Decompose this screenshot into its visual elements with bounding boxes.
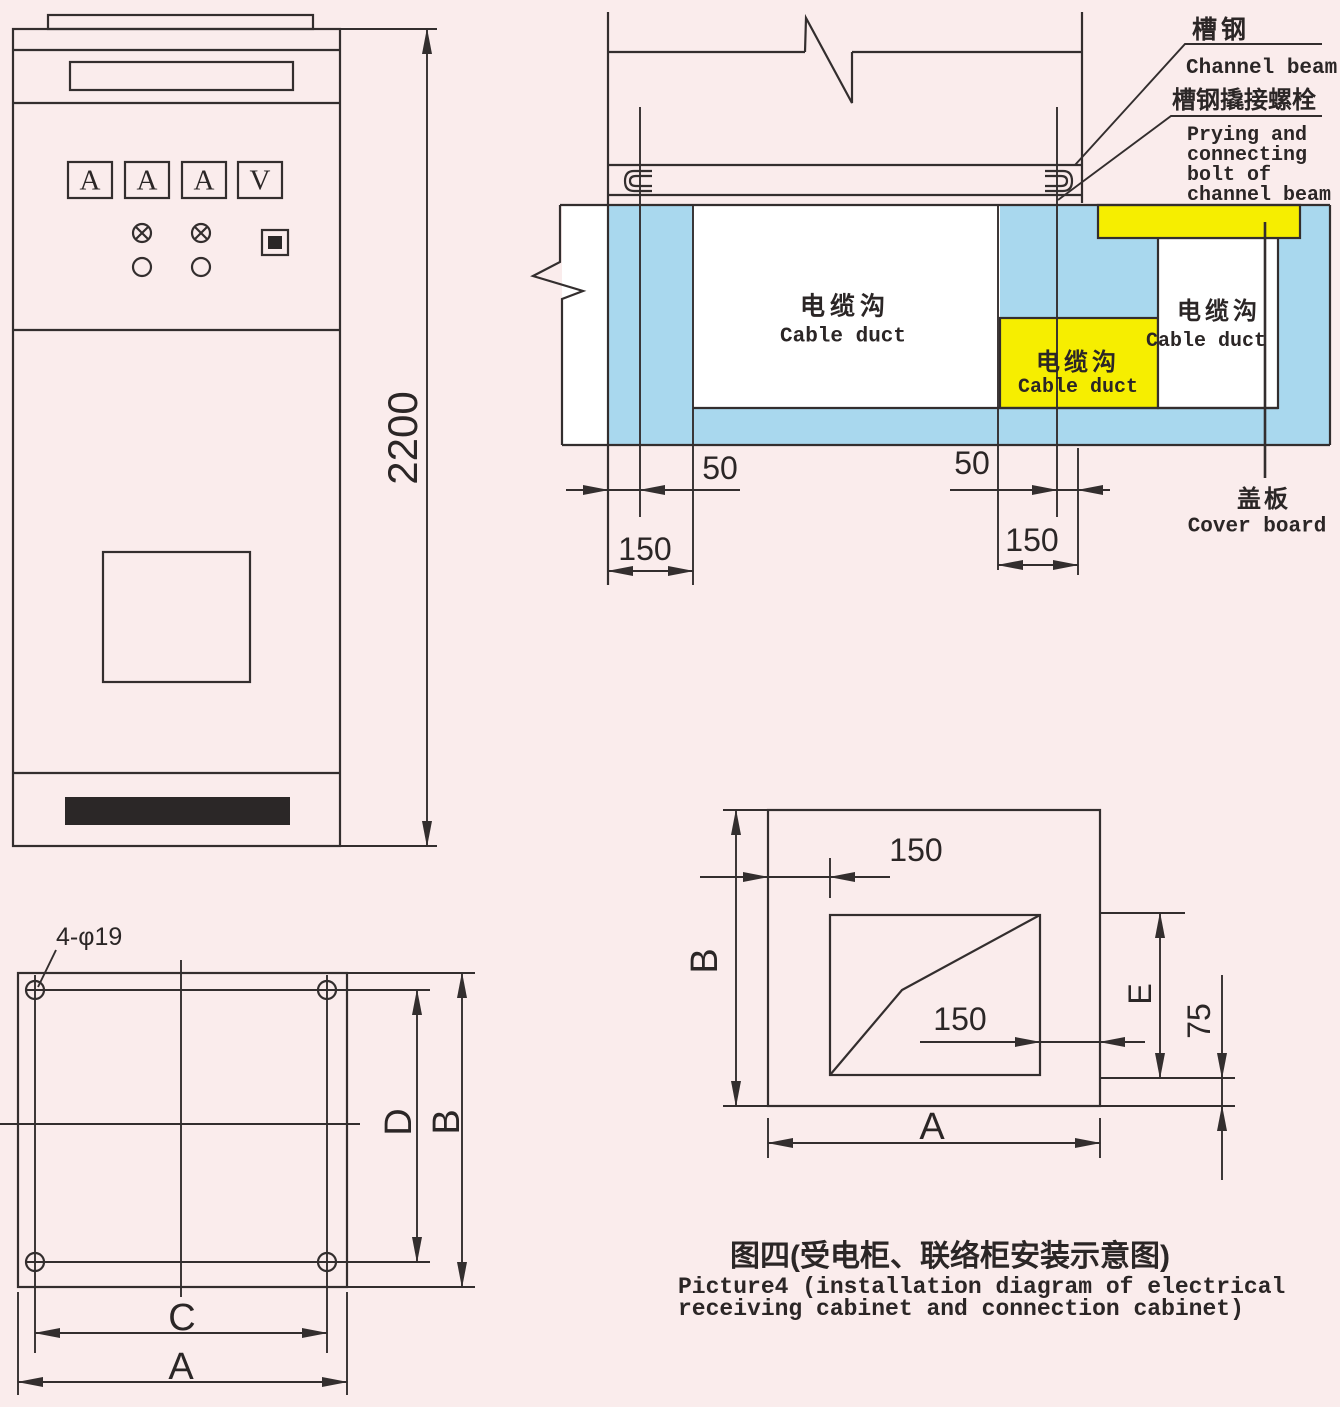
- holes-callout: 4-φ19: [56, 925, 122, 950]
- cable-duct-left-en: Cable duct: [780, 327, 906, 348]
- section-dim-50-right: 50: [954, 447, 990, 479]
- plan-right-dim-a: A: [919, 1108, 944, 1146]
- cover-board-label-en: Cover board: [1188, 517, 1327, 538]
- plan-right-dim-150-mid: 150: [933, 1003, 986, 1035]
- caption-title-cn: 图四(受电柜、联络柜安装示意图): [730, 1242, 1170, 1272]
- plan-left-dim-c: C: [168, 1299, 195, 1337]
- drawing-linework: [0, 0, 1340, 1407]
- bolt-label-cn: 槽钢撬接螺栓: [1172, 89, 1316, 113]
- front-view-lines: [13, 15, 437, 846]
- section-dim-50-left: 50: [702, 452, 738, 484]
- meter-label-a3: A: [194, 167, 215, 196]
- meter-label-v: V: [250, 167, 271, 196]
- cable-duct-mid-en: Cable duct: [1018, 378, 1138, 398]
- plan-left-lines: [0, 950, 475, 1395]
- bolt-label-en-2: connecting: [1187, 146, 1307, 166]
- cable-duct-right-en: Cable duct: [1146, 332, 1266, 352]
- plan-right-dim-75: 75: [1183, 1003, 1215, 1039]
- caption-title-en-line2: receiving cabinet and connection cabinet…: [678, 1298, 1244, 1321]
- plan-right-dim-e: E: [1124, 983, 1156, 1004]
- cable-duct-left-cn: 电缆沟: [800, 295, 890, 320]
- meter-label-a2: A: [137, 167, 158, 196]
- channel-beam-label-en: Channel beam: [1186, 58, 1337, 79]
- meter-label-a1: A: [80, 167, 101, 196]
- bolt-label-en-4: channel beam: [1187, 186, 1331, 206]
- bolt-label-en-1: Prying and: [1187, 126, 1307, 146]
- cable-duct-mid-cn: 电缆沟: [1036, 351, 1120, 375]
- cabinet-height-dim: 2200: [382, 391, 424, 484]
- channel-beam-label-cn: 槽钢: [1192, 18, 1250, 43]
- cable-duct-right-cn: 电缆沟: [1177, 300, 1261, 324]
- plan-left-dim-a: A: [168, 1348, 193, 1386]
- plan-right-dim-b: B: [686, 948, 724, 973]
- plan-left-dim-d: D: [380, 1108, 418, 1135]
- plan-left-dim-b: B: [428, 1109, 466, 1134]
- section-dim-150-left: 150: [618, 533, 671, 565]
- section-dim-150-right: 150: [1005, 524, 1058, 556]
- plan-right-dim-150-top: 150: [889, 834, 942, 866]
- bolt-label-en-3: bolt of: [1187, 166, 1271, 186]
- installation-diagram-page: A A A V 2200 槽钢 Channel beam 槽钢撬接螺栓 Pryi…: [0, 0, 1340, 1407]
- cover-board-label-cn: 盖板: [1237, 488, 1291, 512]
